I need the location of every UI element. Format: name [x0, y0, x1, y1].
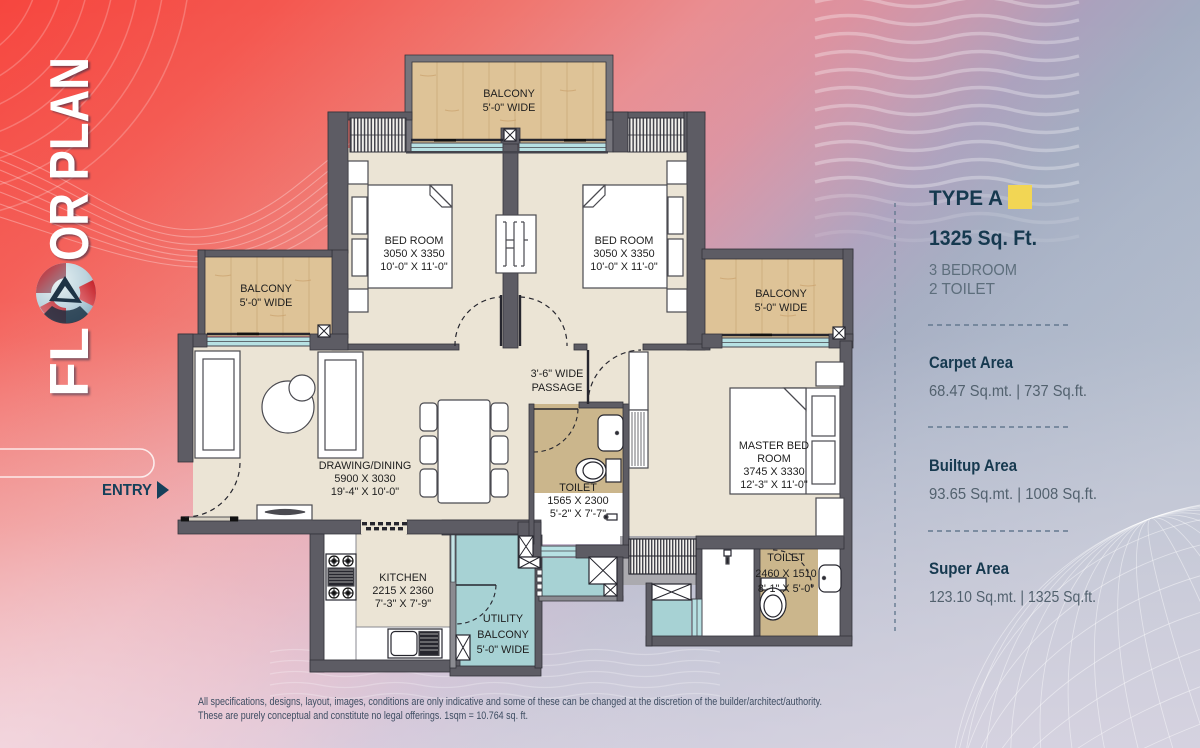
svg-text:MASTER BED: MASTER BED	[739, 440, 809, 452]
svg-text:10'-0" X 11'-0": 10'-0" X 11'-0"	[590, 261, 658, 273]
svg-text:OR PLAN: OR PLAN	[38, 57, 100, 261]
svg-text:TYPE A: TYPE A	[929, 187, 1003, 210]
svg-text:12'-3" X 11'-0": 12'-3" X 11'-0"	[740, 479, 808, 491]
svg-text:ROOM: ROOM	[757, 453, 791, 465]
svg-text:5900 X 3030: 5900 X 3030	[334, 473, 395, 485]
svg-text:5'-0" WIDE: 5'-0" WIDE	[755, 302, 808, 314]
svg-text:TOILET: TOILET	[559, 482, 597, 494]
svg-text:5'-0" WIDE: 5'-0" WIDE	[240, 297, 293, 309]
svg-text:5'-2" X 7'-7": 5'-2" X 7'-7"	[550, 508, 606, 520]
svg-text:93.65 Sq.mt. | 1008 Sq.ft.: 93.65 Sq.mt. | 1008 Sq.ft.	[929, 486, 1097, 503]
svg-text:3745 X 3330: 3745 X 3330	[743, 466, 804, 478]
svg-text:2 TOILET: 2 TOILET	[929, 281, 995, 298]
svg-text:68.47 Sq.mt. | 737 Sq.ft.: 68.47 Sq.mt. | 737 Sq.ft.	[929, 383, 1087, 400]
svg-text:1325 Sq. Ft.: 1325 Sq. Ft.	[929, 227, 1037, 250]
svg-text:BALCONY: BALCONY	[755, 288, 807, 300]
svg-text:KITCHEN: KITCHEN	[379, 572, 426, 584]
svg-text:2460 X 1510: 2460 X 1510	[755, 568, 816, 580]
svg-text:10'-0" X 11'-0": 10'-0" X 11'-0"	[380, 261, 448, 273]
svg-text:These are purely conceptual an: These are purely conceptual and constitu…	[198, 710, 528, 722]
svg-text:2215 X 2360: 2215 X 2360	[372, 585, 433, 597]
svg-text:1565 X 2300: 1565 X 2300	[547, 495, 608, 507]
svg-text:BED ROOM: BED ROOM	[595, 235, 654, 247]
svg-text:8'-1" X 5'-0": 8'-1" X 5'-0"	[758, 583, 814, 595]
svg-text:5'-0" WIDE: 5'-0" WIDE	[477, 644, 530, 656]
svg-text:PASSAGE: PASSAGE	[532, 382, 583, 394]
svg-text:3'-6" WIDE: 3'-6" WIDE	[531, 368, 584, 380]
svg-text:BED ROOM: BED ROOM	[385, 235, 444, 247]
svg-text:ENTRY: ENTRY	[102, 482, 153, 499]
svg-text:UTILITY: UTILITY	[483, 613, 523, 625]
svg-text:3050 X 3350: 3050 X 3350	[593, 248, 654, 260]
svg-text:5'-0" WIDE: 5'-0" WIDE	[483, 102, 536, 114]
svg-text:DRAWING/DINING: DRAWING/DINING	[319, 460, 412, 472]
svg-text:BALCONY: BALCONY	[477, 629, 529, 641]
svg-text:All specifications, designs, l: All specifications, designs, layout, ima…	[198, 696, 822, 708]
svg-text:TOILET: TOILET	[767, 552, 805, 564]
svg-text:19'-4" X 10'-0": 19'-4" X 10'-0"	[331, 486, 399, 498]
svg-text:3 BEDROOM: 3 BEDROOM	[929, 262, 1017, 279]
svg-text:123.10 Sq.mt. | 1325 Sq.ft.: 123.10 Sq.mt. | 1325 Sq.ft.	[929, 589, 1096, 606]
svg-text:BALCONY: BALCONY	[240, 283, 292, 295]
svg-text:BALCONY: BALCONY	[483, 88, 535, 100]
svg-text:Super Area: Super Area	[929, 560, 1010, 578]
svg-text:3050 X 3350: 3050 X 3350	[383, 248, 444, 260]
svg-text:7'-3" X 7'-9": 7'-3" X 7'-9"	[375, 598, 431, 610]
svg-text:Carpet Area: Carpet Area	[929, 354, 1014, 372]
svg-text:FL: FL	[38, 327, 100, 397]
svg-text:Builtup Area: Builtup Area	[929, 457, 1018, 475]
